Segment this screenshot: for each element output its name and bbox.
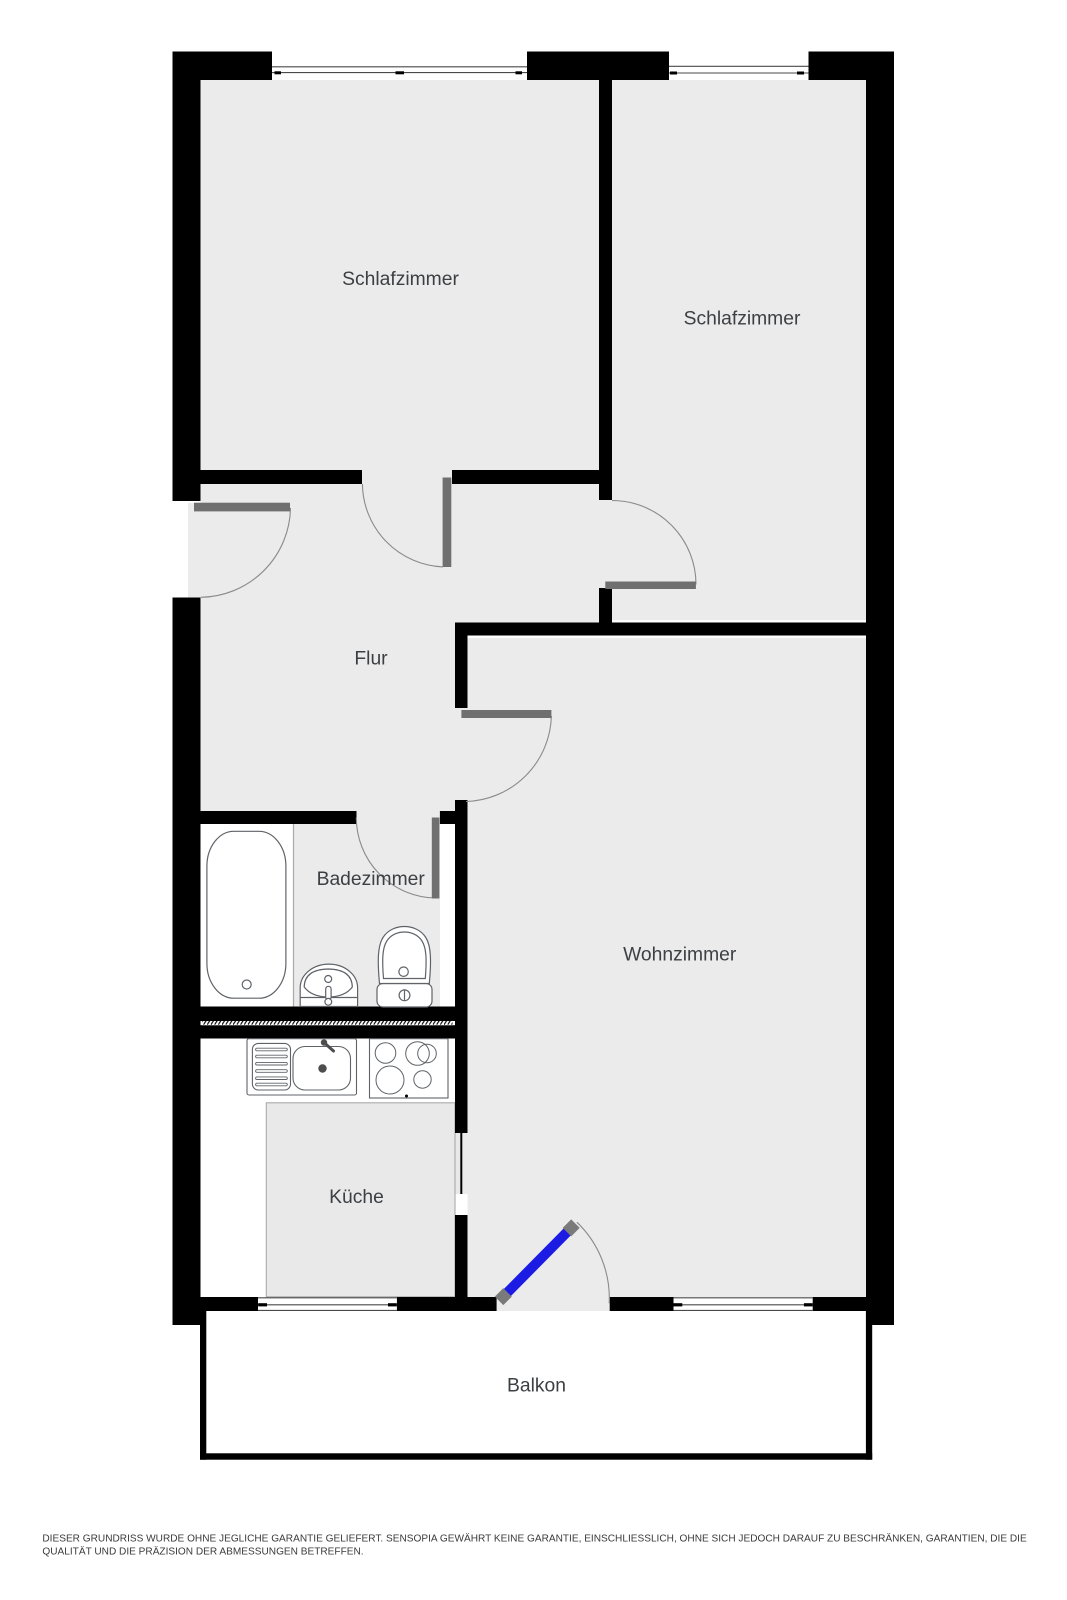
svg-text:Flur: Flur [354, 649, 388, 670]
svg-text:DIESER GRUNDRISS WURDE OHNE JE: DIESER GRUNDRISS WURDE OHNE JEGLICHE GAR… [42, 1532, 1027, 1544]
svg-text:QUALITÄT UND DIE PRÄZISION DER: QUALITÄT UND DIE PRÄZISION DER ABMESSUNG… [42, 1546, 363, 1558]
svg-text:Schlafzimmer: Schlafzimmer [342, 269, 459, 290]
svg-text:Wohnzimmer: Wohnzimmer [623, 944, 737, 965]
svg-text:Balkon: Balkon [507, 1376, 566, 1397]
svg-text:Schlafzimmer: Schlafzimmer [684, 309, 801, 330]
svg-text:Küche: Küche [329, 1187, 384, 1208]
svg-text:Badezimmer: Badezimmer [317, 869, 426, 890]
